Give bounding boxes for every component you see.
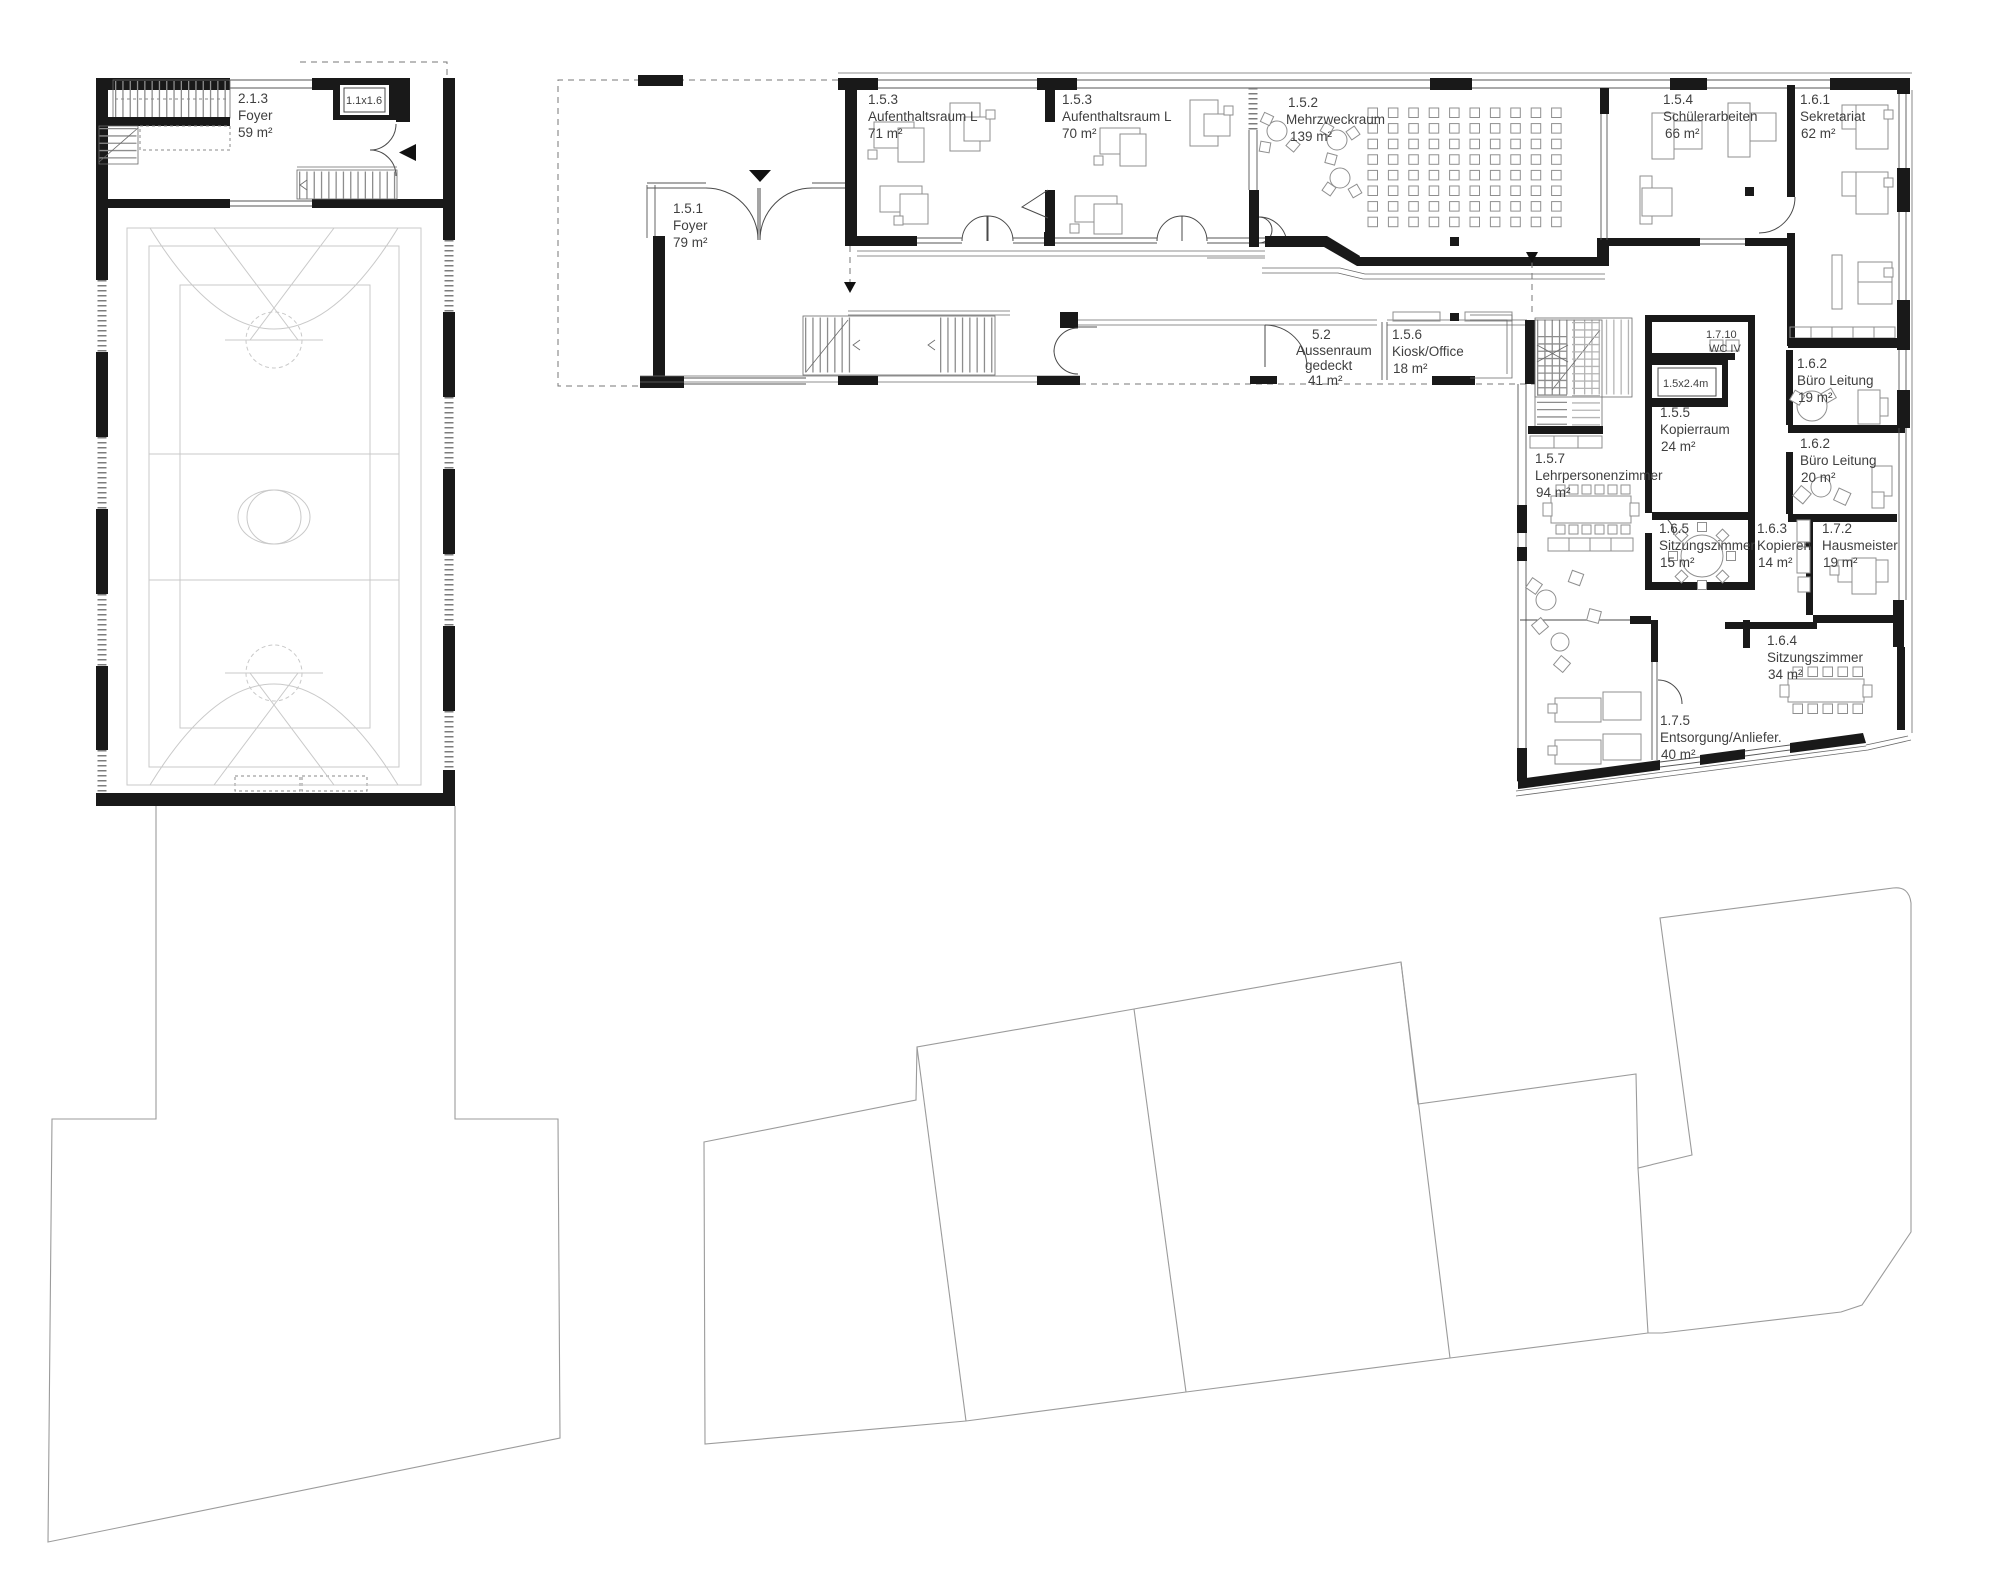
chair-icon xyxy=(1450,108,1460,118)
chair-icon xyxy=(1808,667,1818,677)
desk-cluster xyxy=(1832,105,1893,309)
chair-icon xyxy=(1698,523,1707,532)
svg-text:Kopieren: Kopieren xyxy=(1757,538,1811,553)
chair-icon xyxy=(1552,186,1562,196)
svg-text:1.6.3: 1.6.3 xyxy=(1757,521,1787,536)
chair-icon xyxy=(1582,525,1591,534)
svg-text:1.5.1: 1.5.1 xyxy=(673,201,703,216)
svg-text:94 m²: 94 m² xyxy=(1536,485,1571,500)
chair-icon xyxy=(1368,217,1378,227)
audience-chair-grid xyxy=(1368,108,1561,227)
gym-stair-top xyxy=(96,80,230,164)
chair-icon xyxy=(1409,108,1419,118)
svg-text:1.5.3: 1.5.3 xyxy=(868,92,898,107)
furniture xyxy=(868,100,1893,764)
chair-icon xyxy=(1429,155,1439,165)
chair-icon xyxy=(1582,485,1591,494)
chair-icon xyxy=(1388,170,1398,180)
room-label-156: 1.5.6 Kiosk/Office 18 m² xyxy=(1392,327,1464,376)
chair-icon xyxy=(1409,170,1419,180)
chair-icon xyxy=(1490,108,1500,118)
svg-text:Kopierraum: Kopierraum xyxy=(1660,422,1730,437)
chair-icon xyxy=(1608,485,1617,494)
svg-text:Foyer: Foyer xyxy=(238,108,273,123)
chair-icon xyxy=(1490,217,1500,227)
svg-text:1.6.4: 1.6.4 xyxy=(1767,633,1798,648)
gym-stair-lower xyxy=(297,167,397,199)
svg-text:Hausmeister: Hausmeister xyxy=(1822,538,1898,553)
chair-icon xyxy=(1450,202,1460,212)
chair-icon xyxy=(1470,170,1480,180)
chair-icon xyxy=(1552,170,1562,180)
chair-icon xyxy=(1511,217,1521,227)
chair-icon xyxy=(1531,202,1541,212)
chair-icon xyxy=(1388,186,1398,196)
svg-text:19 m²: 19 m² xyxy=(1823,555,1858,570)
chair-icon xyxy=(1838,667,1848,677)
svg-text:1.5.6: 1.5.6 xyxy=(1392,327,1422,342)
chair-icon xyxy=(1511,108,1521,118)
svg-text:70 m²: 70 m² xyxy=(1062,126,1097,141)
svg-text:Büro Leitung: Büro Leitung xyxy=(1800,453,1877,468)
svg-text:1.5.5: 1.5.5 xyxy=(1660,405,1690,420)
gym-south-wall xyxy=(96,793,455,806)
chair-icon xyxy=(1368,202,1378,212)
chair-icon xyxy=(1531,217,1541,227)
chair-icon xyxy=(1429,170,1439,180)
chair-icon xyxy=(1388,108,1398,118)
chair-icon xyxy=(1429,202,1439,212)
gym-entrance-arrow xyxy=(399,144,416,161)
chair-icon xyxy=(1429,186,1439,196)
svg-text:Büro Leitung: Büro Leitung xyxy=(1797,373,1874,388)
chair-icon xyxy=(1511,155,1521,165)
room-label-52: 5.2 Aussenraum gedeckt 41 m² xyxy=(1296,327,1372,388)
chair-icon xyxy=(1531,186,1541,196)
chair-icon xyxy=(1470,124,1480,134)
chair-icon xyxy=(1450,217,1460,227)
chair-icon xyxy=(1388,155,1398,165)
foyer-151 xyxy=(640,170,845,388)
exterior-stair-west xyxy=(803,311,1010,375)
chair-icon xyxy=(1388,202,1398,212)
svg-text:Aufenthaltsraum L: Aufenthaltsraum L xyxy=(1062,109,1172,124)
room-label-1710: 1.7.10 WC IV xyxy=(1706,329,1741,355)
gym-west-wall xyxy=(96,199,108,793)
svg-text:66 m²: 66 m² xyxy=(1665,126,1700,141)
gym-east-wall xyxy=(443,199,455,806)
chair-icon xyxy=(1470,186,1480,196)
svg-text:79 m²: 79 m² xyxy=(673,235,708,250)
chair-icon xyxy=(1511,202,1521,212)
chair-icon xyxy=(1531,139,1541,149)
svg-text:20 m²: 20 m² xyxy=(1801,470,1836,485)
chair-icon xyxy=(1552,217,1562,227)
chair-icon xyxy=(1531,170,1541,180)
chair-icon xyxy=(1388,139,1398,149)
wall-divider-153 xyxy=(1022,88,1055,246)
chair-icon xyxy=(1531,124,1541,134)
svg-text:gedeckt: gedeckt xyxy=(1305,358,1353,373)
chair-icon xyxy=(1511,186,1521,196)
copier-machines xyxy=(1797,520,1810,592)
chair-icon xyxy=(1556,525,1565,534)
svg-text:5.2: 5.2 xyxy=(1312,327,1331,342)
chair-icon xyxy=(1368,139,1378,149)
chair-icon xyxy=(1552,108,1562,118)
floor-plan-page: 2.1.3 Foyer 59 m² 1.1x1.6 1.5.3 Aufentha… xyxy=(0,0,2000,1584)
chair-icon xyxy=(1450,124,1460,134)
svg-text:1.7.10: 1.7.10 xyxy=(1706,329,1737,341)
chair-icon xyxy=(1429,217,1439,227)
svg-text:1.5.7: 1.5.7 xyxy=(1535,451,1565,466)
svg-text:Aussenraum: Aussenraum xyxy=(1296,343,1372,358)
chair-icon xyxy=(1823,704,1833,714)
wing-lift-label: 1.5x2.4m xyxy=(1663,378,1708,390)
svg-text:139 m²: 139 m² xyxy=(1290,129,1333,144)
svg-text:34 m²: 34 m² xyxy=(1768,667,1803,682)
chair-icon xyxy=(1490,155,1500,165)
chair-icon xyxy=(1511,139,1521,149)
chair-icon xyxy=(1470,155,1480,165)
chair-icon xyxy=(1409,202,1419,212)
chair-icon xyxy=(1823,667,1833,677)
chair-icon xyxy=(1511,124,1521,134)
svg-text:15 m²: 15 m² xyxy=(1660,555,1695,570)
site-outlines xyxy=(48,806,1911,1542)
svg-text:1.7.2: 1.7.2 xyxy=(1822,521,1852,536)
chair-icon xyxy=(1450,139,1460,149)
chair-icon xyxy=(1490,139,1500,149)
chair-icon xyxy=(1429,139,1439,149)
chair-icon xyxy=(1552,202,1562,212)
chair-icon xyxy=(1531,108,1541,118)
chair-icon xyxy=(1675,570,1688,583)
svg-text:WC IV: WC IV xyxy=(1709,343,1741,355)
chair-icon xyxy=(1552,139,1562,149)
svg-text:1.5.3: 1.5.3 xyxy=(1062,92,1092,107)
svg-text:2.1.3: 2.1.3 xyxy=(238,91,268,106)
room-label-213: 2.1.3 Foyer 59 m² xyxy=(238,91,273,140)
svg-text:Sekretariat: Sekretariat xyxy=(1800,109,1866,124)
gym-lift-label: 1.1x1.6 xyxy=(346,95,382,107)
gym-building xyxy=(96,62,455,806)
chair-icon xyxy=(1429,124,1439,134)
svg-text:Sitzungszimmer: Sitzungszimmer xyxy=(1767,650,1864,665)
chair-icon xyxy=(1450,155,1460,165)
chair-icon xyxy=(1388,217,1398,227)
svg-text:1.5.2: 1.5.2 xyxy=(1288,95,1318,110)
chair-icon xyxy=(1368,170,1378,180)
chair-icon xyxy=(1698,581,1707,590)
svg-text:14 m²: 14 m² xyxy=(1758,555,1793,570)
chair-icon xyxy=(1490,170,1500,180)
conference-table-157 xyxy=(1526,485,1641,764)
chair-icon xyxy=(1552,124,1562,134)
svg-text:Lehrpersonenzimmer: Lehrpersonenzimmer xyxy=(1535,468,1663,483)
svg-text:24 m²: 24 m² xyxy=(1661,439,1696,454)
chair-icon xyxy=(1470,217,1480,227)
chair-icon xyxy=(1511,170,1521,180)
svg-text:62 m²: 62 m² xyxy=(1801,126,1836,141)
sekretariat-counter xyxy=(1790,327,1895,338)
chair-icon xyxy=(1838,704,1848,714)
roof-overhang-dashed xyxy=(558,80,838,386)
svg-text:1.6.2: 1.6.2 xyxy=(1797,356,1827,371)
chair-icon xyxy=(1490,124,1500,134)
svg-text:41 m²: 41 m² xyxy=(1308,373,1343,388)
chair-icon xyxy=(1368,155,1378,165)
chair-icon xyxy=(1470,108,1480,118)
chair-icon xyxy=(1388,124,1398,134)
chair-icon xyxy=(1793,704,1803,714)
chair-icon xyxy=(1552,155,1562,165)
svg-text:1.6.1: 1.6.1 xyxy=(1800,92,1830,107)
chair-icon xyxy=(1409,139,1419,149)
chair-icon xyxy=(1409,186,1419,196)
chair-icon xyxy=(1808,704,1818,714)
chair-icon xyxy=(1621,525,1630,534)
svg-text:18 m²: 18 m² xyxy=(1393,361,1428,376)
svg-text:Entsorgung/Anliefer.: Entsorgung/Anliefer. xyxy=(1660,730,1782,745)
chair-icon xyxy=(1470,202,1480,212)
svg-text:1.7.5: 1.7.5 xyxy=(1660,713,1690,728)
chair-icon xyxy=(1621,485,1630,494)
chair-icon xyxy=(1716,570,1729,583)
svg-text:1.5.4: 1.5.4 xyxy=(1663,92,1694,107)
chair-icon xyxy=(1409,124,1419,134)
floor-plan-svg: 2.1.3 Foyer 59 m² 1.1x1.6 1.5.3 Aufentha… xyxy=(0,0,2000,1584)
svg-text:71 m²: 71 m² xyxy=(868,126,903,141)
chair-icon xyxy=(1409,217,1419,227)
chair-icon xyxy=(1608,525,1617,534)
svg-text:Foyer: Foyer xyxy=(673,218,708,233)
svg-text:59 m²: 59 m² xyxy=(238,125,273,140)
room-label-155: 1.5.5 Kopierraum 24 m² xyxy=(1660,405,1730,454)
wall-divider-152 xyxy=(1249,88,1287,247)
chair-icon xyxy=(1429,108,1439,118)
svg-text:40 m²: 40 m² xyxy=(1661,747,1696,762)
gym-door-arc xyxy=(370,124,396,150)
chair-icon xyxy=(1450,170,1460,180)
chair-icon xyxy=(1450,186,1460,196)
covered-outdoor-area xyxy=(640,246,1632,397)
svg-text:1.6.5: 1.6.5 xyxy=(1659,521,1689,536)
chair-icon xyxy=(1569,525,1578,534)
chair-icon xyxy=(1409,155,1419,165)
chair-icon xyxy=(1595,525,1604,534)
chair-icon xyxy=(1595,485,1604,494)
chair-icon xyxy=(1853,704,1863,714)
svg-text:Sitzungszimmer: Sitzungszimmer xyxy=(1659,538,1756,553)
room-label-162b: 1.6.2 Büro Leitung 20 m² xyxy=(1800,436,1877,485)
foyer-entrance-arrow xyxy=(749,170,771,182)
basketball-court xyxy=(127,228,421,785)
svg-text:Kiosk/Office: Kiosk/Office xyxy=(1392,344,1464,359)
svg-text:Aufenthaltsraum L: Aufenthaltsraum L xyxy=(868,109,978,124)
chair-icon xyxy=(1490,186,1500,196)
door-arc xyxy=(962,216,987,241)
chair-icon xyxy=(1470,139,1480,149)
svg-text:1.6.2: 1.6.2 xyxy=(1800,436,1830,451)
svg-text:19 m²: 19 m² xyxy=(1798,390,1833,405)
sideboard xyxy=(1548,538,1633,551)
chair-icon xyxy=(1490,202,1500,212)
room-label-151: 1.5.1 Foyer 79 m² xyxy=(673,201,708,250)
stair-counter xyxy=(1530,436,1602,448)
chair-icon xyxy=(1853,667,1863,677)
chair-icon xyxy=(1368,186,1378,196)
chair-icon xyxy=(1531,155,1541,165)
svg-text:Mehrzweckraum: Mehrzweckraum xyxy=(1286,112,1385,127)
svg-text:Schülerarbeiten: Schülerarbeiten xyxy=(1663,109,1758,124)
